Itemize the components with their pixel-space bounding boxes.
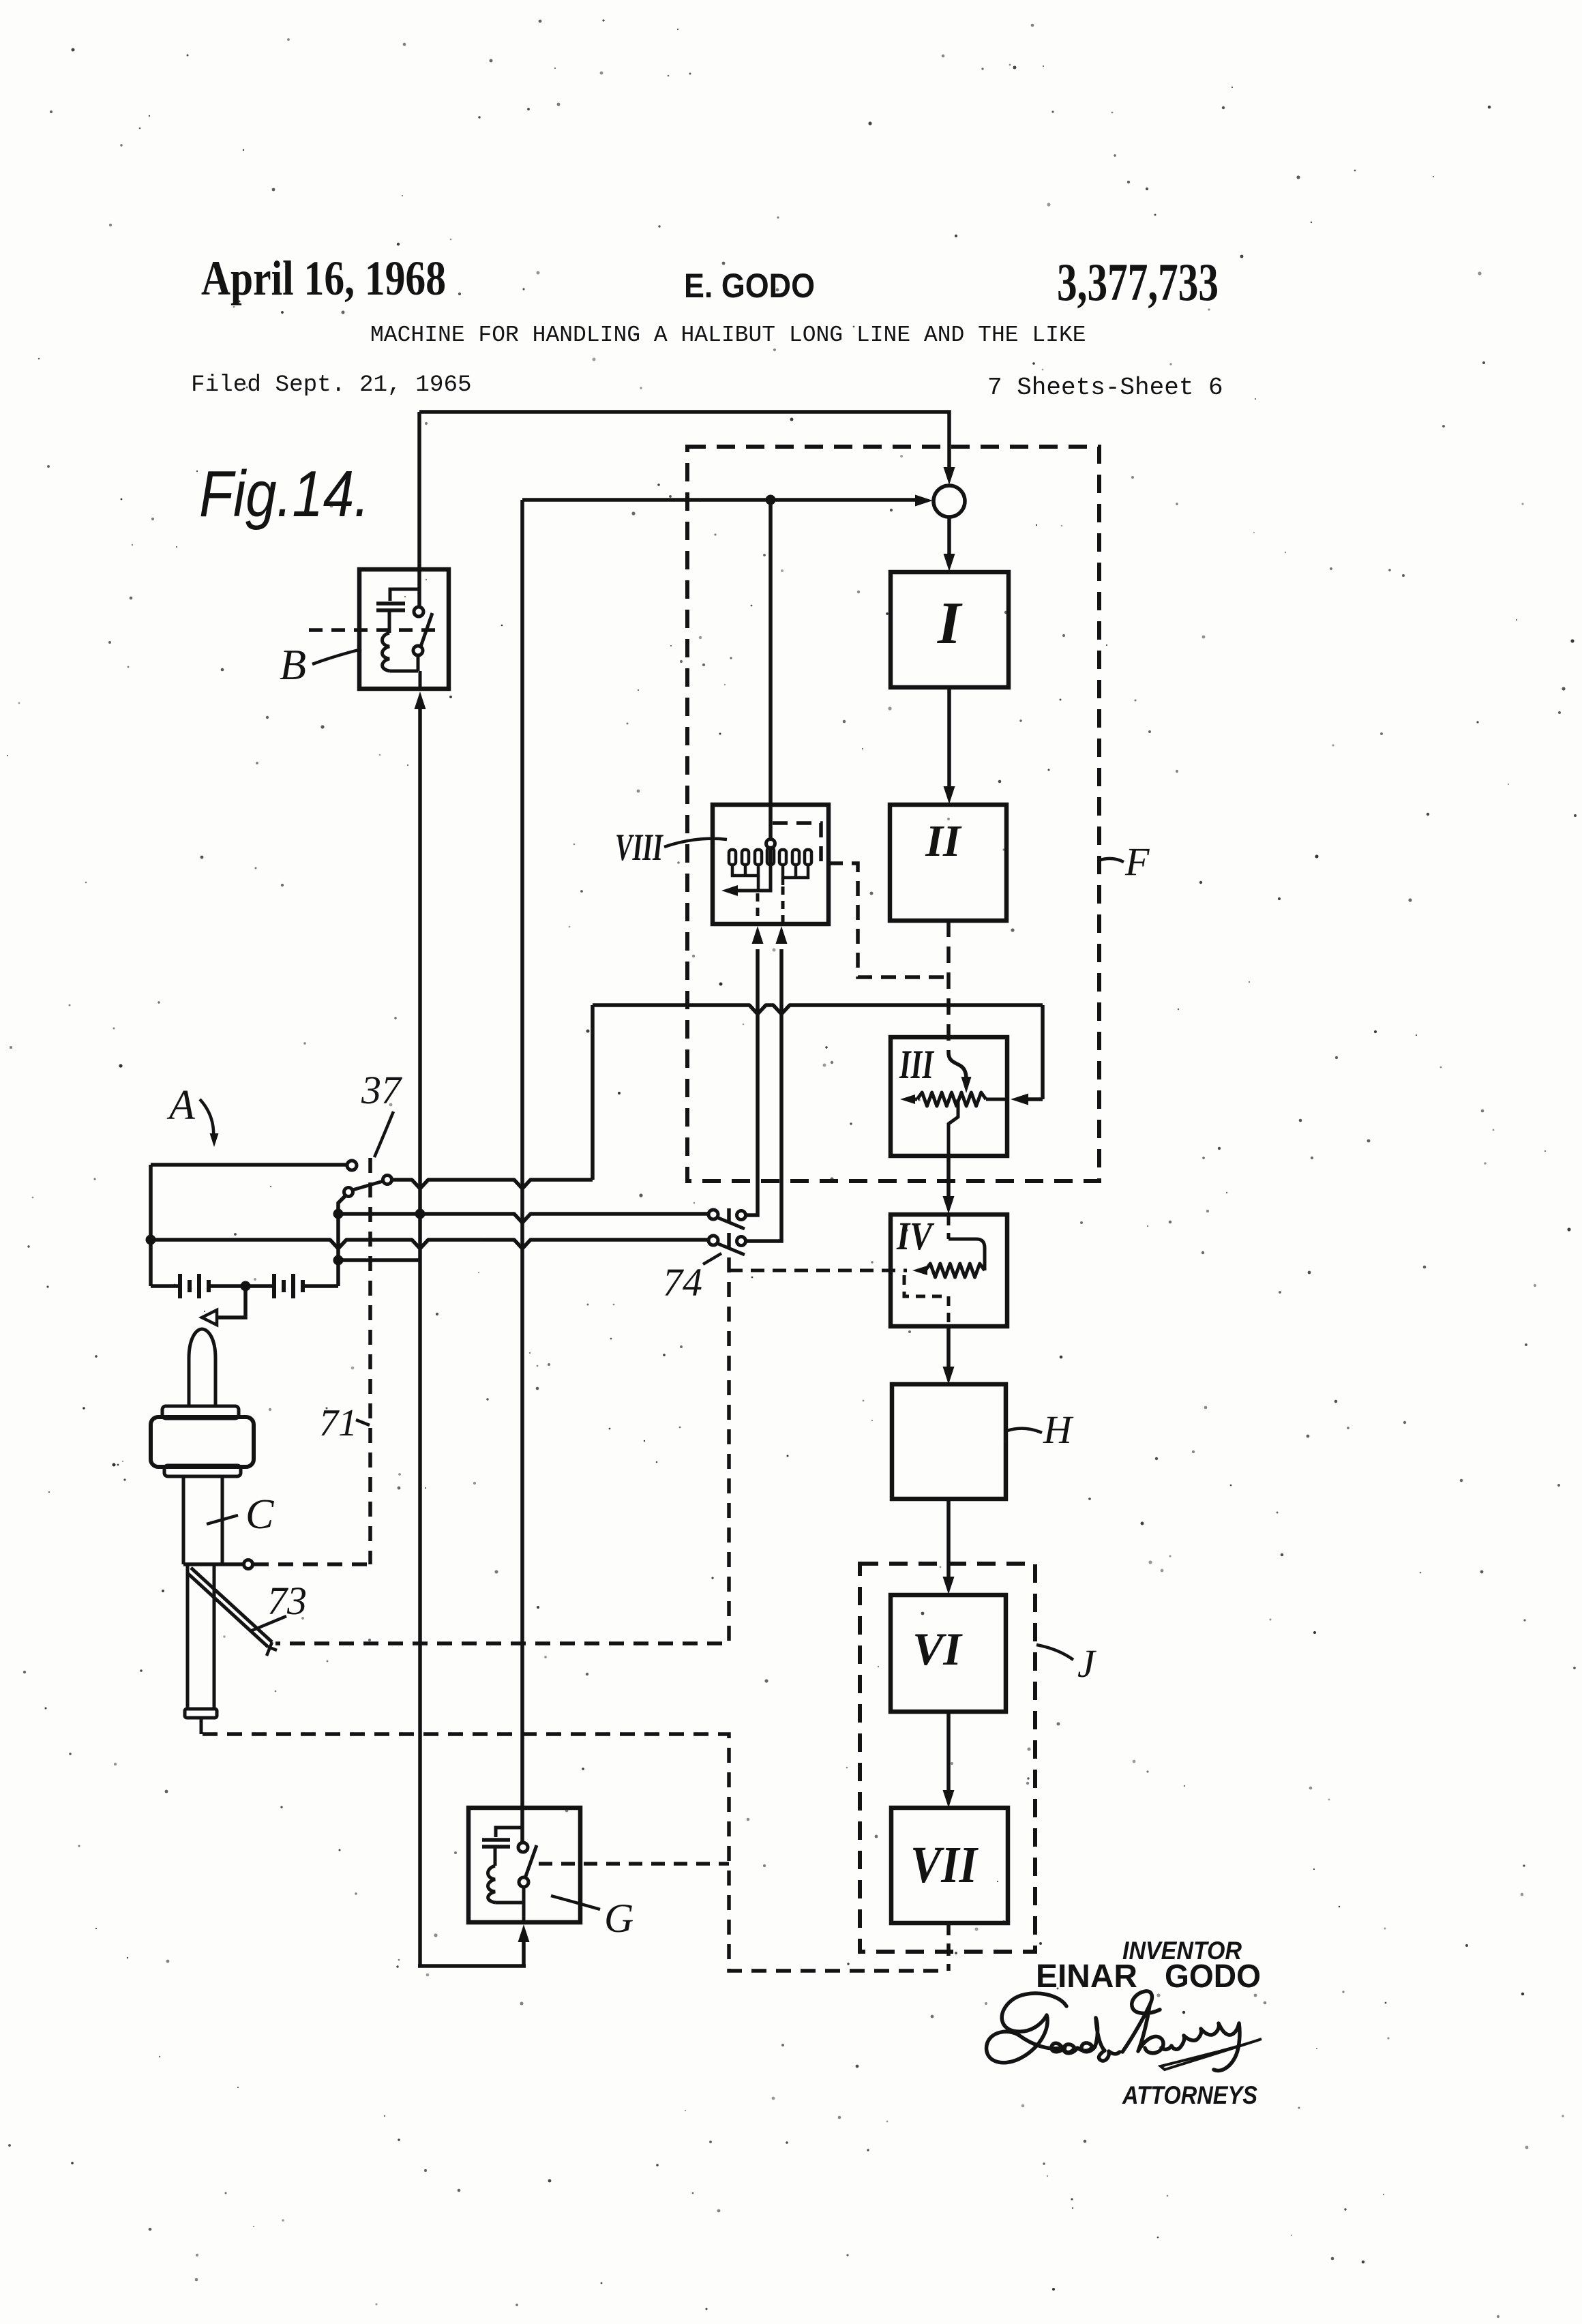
svg-text:71: 71 <box>319 1402 357 1444</box>
svg-text:IV: IV <box>896 1214 935 1258</box>
svg-text:3,377,733: 3,377,733 <box>1057 252 1219 312</box>
svg-text:J: J <box>1077 1641 1097 1686</box>
svg-text:VII: VII <box>910 1836 979 1894</box>
svg-text:I: I <box>937 591 963 657</box>
svg-text:74: 74 <box>663 1260 702 1305</box>
svg-text:73: 73 <box>267 1579 307 1623</box>
svg-text:Fig.14.: Fig.14. <box>199 458 370 531</box>
svg-text:GODO: GODO <box>1165 1958 1261 1995</box>
svg-text:EINAR: EINAR <box>1036 1958 1137 1995</box>
svg-text:VI: VI <box>912 1623 963 1675</box>
svg-text:ATTORNEYS: ATTORNEYS <box>1122 2081 1257 2109</box>
svg-text:E. GODO: E. GODO <box>684 267 815 305</box>
svg-text:G: G <box>604 1896 633 1941</box>
svg-text:Filed Sept. 21, 1965: Filed Sept. 21, 1965 <box>191 372 472 398</box>
svg-text:A: A <box>166 1082 196 1129</box>
svg-text:F: F <box>1124 839 1150 884</box>
svg-text:7 Sheets-Sheet 6: 7 Sheets-Sheet 6 <box>987 374 1223 402</box>
svg-text:II: II <box>925 816 962 866</box>
svg-text:37: 37 <box>361 1068 402 1112</box>
svg-text:H: H <box>1043 1407 1074 1452</box>
svg-text:B: B <box>280 640 306 689</box>
svg-text:MACHINE FOR HANDLING A HALIBUT: MACHINE FOR HANDLING A HALIBUT LONG LINE… <box>370 323 1086 348</box>
svg-text:C: C <box>245 1491 274 1538</box>
svg-text:VIII: VIII <box>615 826 664 869</box>
svg-text:April 16, 1968: April 16, 1968 <box>201 251 446 306</box>
svg-text:III: III <box>899 1042 935 1087</box>
